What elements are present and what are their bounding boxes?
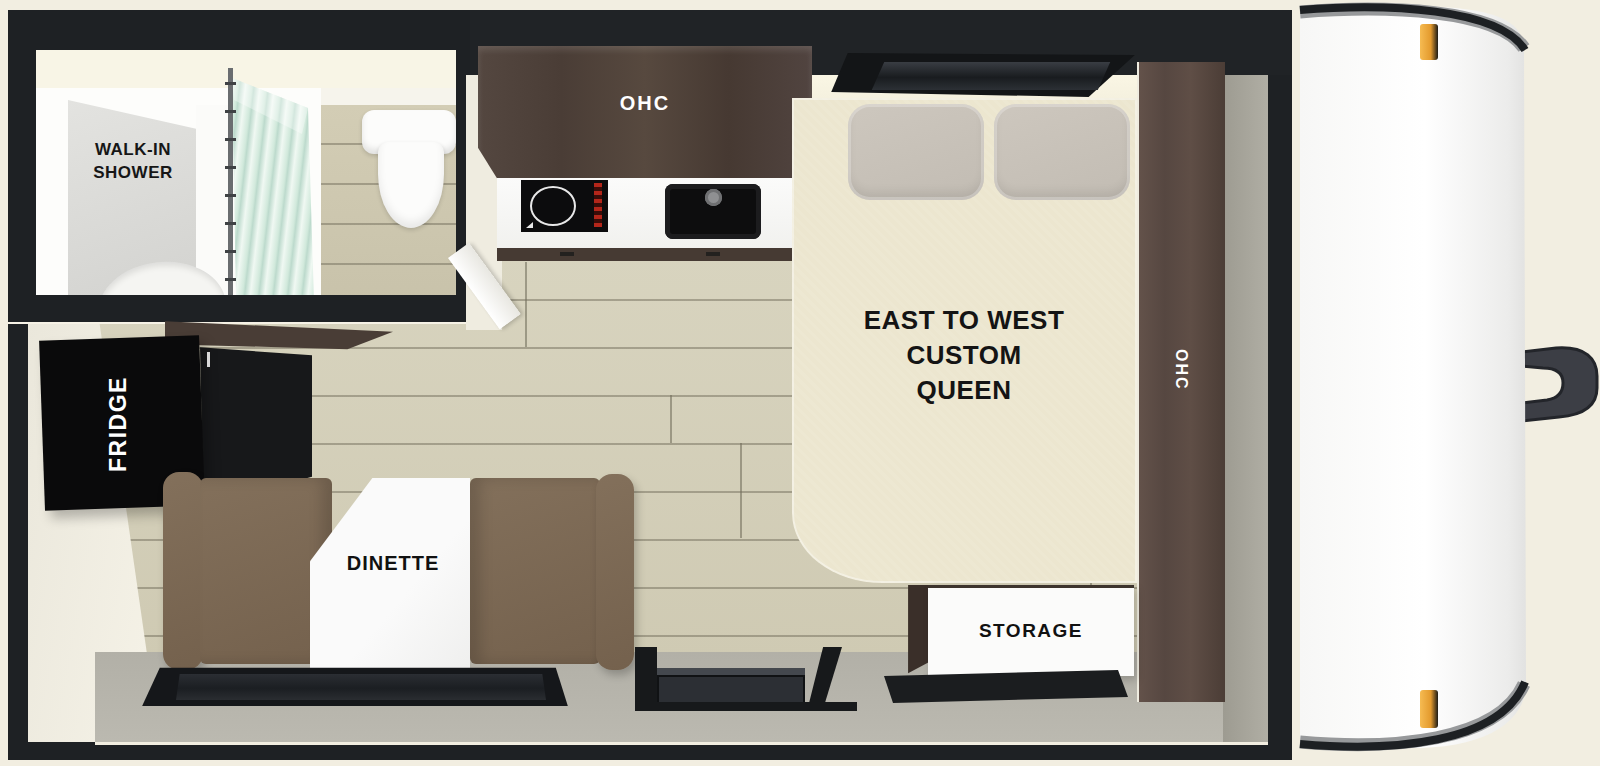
cabinet-hinge: [706, 252, 720, 256]
floor-seam: [525, 262, 527, 347]
bathroom-interior: WALK-IN SHOWER: [36, 50, 456, 305]
storage-box: STORAGE: [928, 585, 1134, 676]
dinette-bench-left-armrest: [163, 472, 203, 670]
cabinet-hinge: [560, 252, 574, 256]
burner-ring: [530, 186, 576, 226]
walk-in-shower-label: WALK-IN SHOWER: [70, 138, 196, 184]
fridge-label: FRIDGE: [105, 376, 132, 472]
trailer-front-cap: [1292, 0, 1600, 766]
dinette-bench-right: [470, 478, 600, 664]
floorplan-canvas: WALK-IN SHOWER: [0, 0, 1600, 766]
kitchen-sink: [665, 184, 761, 239]
roof-vent-glass: [872, 62, 1110, 90]
front-interior-wall: [1223, 75, 1268, 742]
entry-door-sill: [635, 702, 857, 711]
dinette-window-glass: [176, 674, 546, 700]
cooktop: [521, 180, 608, 232]
bathroom-dividing-wall: [8, 295, 470, 324]
hitch-coupler: [1522, 348, 1597, 421]
pillow-left: [848, 104, 984, 200]
counter-front-trim: [497, 248, 795, 261]
floor-seam: [740, 443, 742, 538]
cooktop-mark: [526, 222, 533, 228]
storage-label: STORAGE: [928, 588, 1134, 673]
dinette-bench-right-armrest: [596, 474, 634, 670]
curtain-rod: [228, 68, 233, 306]
wardrobe-ohc-label: OHC: [1137, 330, 1225, 410]
floor-seam: [670, 395, 672, 443]
sink-drain: [705, 189, 722, 206]
marker-light-bottom: [1420, 690, 1438, 728]
bathroom: WALK-IN SHOWER: [8, 10, 470, 322]
pillow-right: [994, 104, 1130, 200]
dinette-label: DINETTE: [318, 552, 468, 575]
entry-door-post-left: [635, 647, 657, 709]
marker-light-top: [1420, 24, 1438, 60]
kitchen-ohc-label: OHC: [478, 92, 812, 115]
shower-curtain: [222, 64, 328, 310]
cooktop-controls: [594, 183, 602, 227]
bed-label: EAST TO WEST CUSTOM QUEEN: [838, 303, 1090, 408]
fridge-handle: [207, 352, 210, 367]
